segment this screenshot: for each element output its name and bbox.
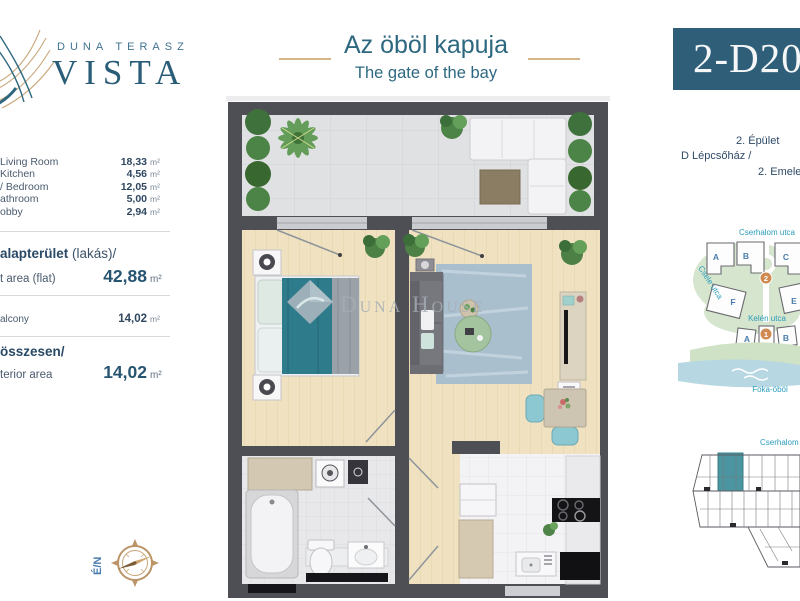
phase-2-number: 2	[764, 274, 768, 283]
compass-icon: É/N	[88, 523, 178, 601]
table-row: athroom 5,00 m²	[0, 193, 170, 205]
total-label-hu: összesen/	[0, 344, 65, 359]
brand-line: DUNA TERASZ	[57, 41, 189, 53]
side-table	[416, 259, 434, 271]
table-row: obby 2,94 m²	[0, 206, 170, 218]
block-label-c: C	[783, 252, 789, 262]
total-row: terior area 14,02 m²	[0, 362, 170, 383]
balcony-unit: m²	[147, 314, 170, 324]
net-area-label-en: t area (flat)	[0, 273, 103, 285]
table-row: / Bedroom 12,05 m²	[0, 181, 170, 193]
bathtub	[246, 490, 298, 578]
tv-console	[560, 292, 586, 380]
sofa	[410, 272, 443, 374]
room-unit: m²	[147, 157, 170, 167]
building-line-3: 2. Emelet	[758, 166, 800, 178]
watermark-text: Duna House	[340, 292, 485, 317]
block-label-e: E	[791, 296, 797, 306]
kitchen-sink	[516, 552, 556, 576]
floorplan-datasheet: { "brand": { "top": "DUNA TERASZ", "name…	[0, 0, 800, 600]
net-area-label-hu: alapterület (lakás)/	[0, 246, 116, 261]
title-dash-right	[528, 58, 580, 60]
strip-street-label: Cserhalom utca	[760, 438, 800, 447]
block-label-b: B	[743, 251, 749, 261]
room-unit: m²	[147, 169, 170, 179]
balcony-label: alcony	[0, 314, 118, 325]
net-area-value: 42,88	[103, 266, 147, 287]
north-label: É/N	[91, 557, 104, 575]
room-value: 4,56	[99, 168, 147, 180]
building-line-2: D Lépcsőház /	[681, 150, 751, 162]
divider-wall	[395, 452, 409, 491]
site-map: A B C F E A B 2 1 Cserhalom utca Csele u…	[660, 222, 800, 395]
room-unit: m²	[147, 182, 170, 192]
highlighted-unit	[718, 453, 743, 491]
block-label-f: F	[730, 297, 735, 307]
divider-wall	[395, 230, 409, 410]
tall-cabinet	[459, 520, 493, 578]
street-label-mid: Kelén utca	[748, 314, 786, 323]
room-value: 12,05	[99, 181, 147, 193]
strip-outline	[693, 455, 800, 567]
total-value: 14,02	[103, 362, 147, 383]
bedroom-bathroom-wall	[242, 446, 409, 456]
strip-units	[696, 455, 800, 561]
net-area-unit: m²	[147, 274, 170, 285]
total-unit: m²	[147, 370, 170, 381]
floor-strip-plan: Cserhalom utca	[660, 435, 800, 575]
nightstand	[253, 375, 281, 400]
divider	[0, 295, 170, 296]
page-title-hu: Az öböl kapuja	[300, 31, 552, 60]
unit-code: 2-D20	[673, 28, 800, 88]
balcony-row: alcony 14,02 m²	[0, 313, 170, 325]
unit-code-badge: 2-D20	[673, 28, 800, 90]
kitchen-stub-wall	[452, 441, 500, 454]
block-label-a: A	[713, 252, 719, 262]
cooktop	[552, 498, 600, 522]
floor-plan: Duna House	[222, 96, 614, 601]
room-value: 18,33	[99, 156, 147, 168]
fridge	[460, 484, 496, 516]
street-label-top: Cserhalom utca	[739, 228, 796, 237]
water	[678, 359, 800, 387]
tv-icon	[564, 310, 568, 364]
page-title-en: The gate of the bay	[300, 64, 552, 83]
nightstand	[253, 250, 281, 275]
room-value: 5,00	[99, 193, 147, 205]
divider-wall	[395, 526, 409, 584]
phase-1-number: 1	[764, 330, 768, 339]
entrance-threshold	[505, 586, 560, 596]
brand-name: VISTA	[52, 53, 187, 93]
sink-vanity	[348, 542, 384, 568]
bay-label: Foka-öböl	[752, 385, 788, 394]
brand-logo-mark-icon	[0, 18, 58, 110]
room-label: Kitchen	[0, 168, 99, 180]
block-label-b2: B	[783, 333, 789, 343]
divider	[0, 336, 170, 337]
radiator	[248, 584, 296, 593]
net-area-row: t area (flat) 42,88 m²	[0, 266, 170, 287]
room-value: 2,94	[99, 206, 147, 218]
room-label: Living Room	[0, 156, 99, 168]
table-row: Kitchen 4,56 m²	[0, 168, 170, 180]
balcony-value: 14,02	[118, 313, 147, 325]
toilet	[308, 540, 334, 576]
room-label: / Bedroom	[0, 181, 99, 193]
building-line-1: 2. Épület	[736, 135, 779, 147]
room-unit: m²	[147, 207, 170, 217]
hallway-floor	[409, 454, 460, 584]
coffee-table	[455, 316, 491, 352]
room-area-table: Living Room 18,33 m² Kitchen 4,56 m² / B…	[0, 156, 170, 218]
room-label: obby	[0, 206, 99, 218]
net-area-label-rest: (lakás)/	[68, 246, 116, 261]
net-area-label-bold: alapterület	[0, 246, 68, 261]
table-row: Living Room 18,33 m²	[0, 156, 170, 168]
terrace-coffee-table	[480, 170, 520, 204]
black-appliance	[560, 552, 600, 580]
total-label-en: terior area	[0, 369, 103, 381]
room-unit: m²	[147, 194, 170, 204]
roof-edge	[226, 96, 610, 101]
divider	[0, 231, 170, 232]
strip-wall-accents	[704, 487, 788, 565]
room-label: athroom	[0, 193, 99, 205]
radiator	[306, 573, 388, 582]
